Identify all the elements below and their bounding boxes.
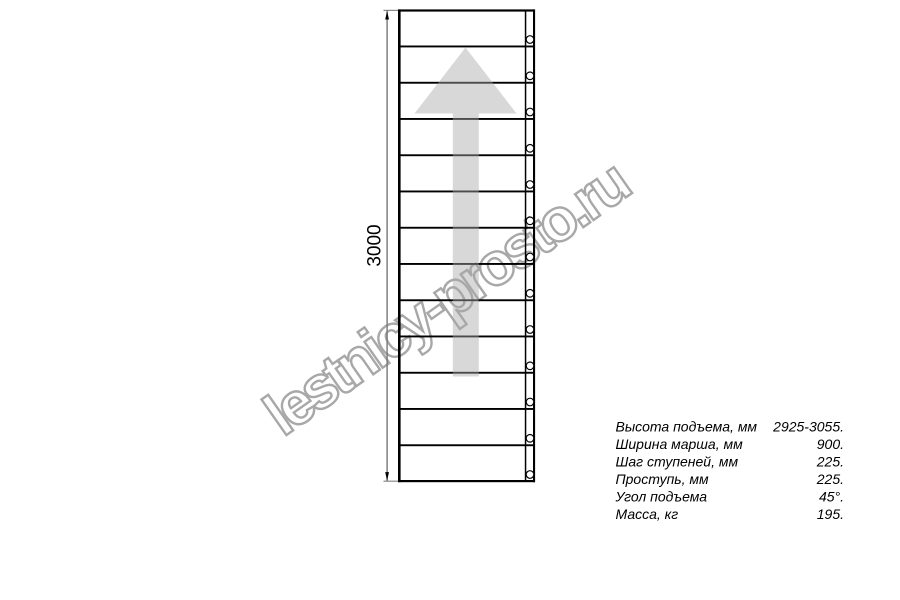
svg-text:Ширина марша, мм: Ширина марша, мм [616, 436, 744, 452]
svg-text:3000: 3000 [365, 224, 386, 266]
svg-text:Масса, кг: Масса, кг [616, 506, 679, 522]
svg-text:2925-3055.: 2925-3055. [772, 419, 844, 435]
svg-text:225.: 225. [816, 454, 844, 470]
svg-text:195.: 195. [817, 506, 844, 522]
svg-text:Угол подъема: Угол подъема [615, 489, 708, 505]
svg-text:lestnicy-prosto.ru: lestnicy-prosto.ru [252, 149, 640, 449]
svg-text:900.: 900. [817, 436, 844, 452]
svg-text:225.: 225. [816, 471, 844, 487]
svg-text:45°.: 45°. [819, 489, 844, 505]
svg-text:Шаг ступеней, мм: Шаг ступеней, мм [616, 454, 739, 470]
svg-text:Высота подъема, мм: Высота подъема, мм [616, 419, 758, 435]
svg-text:Проступь, мм: Проступь, мм [616, 471, 710, 487]
